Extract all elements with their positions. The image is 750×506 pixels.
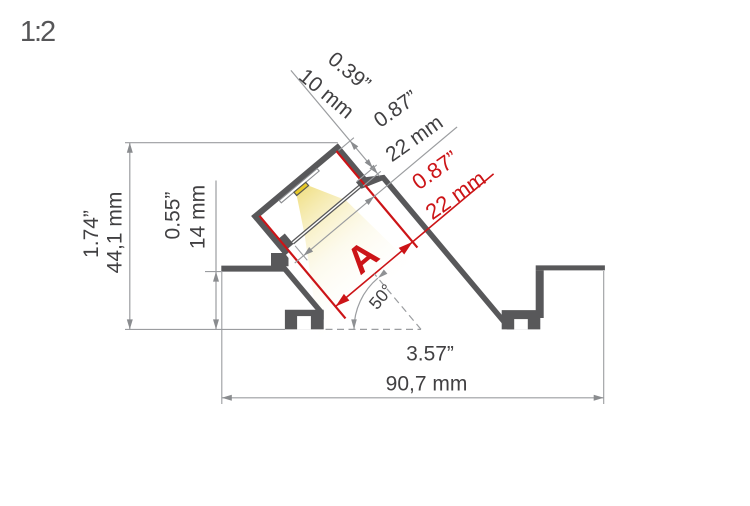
svg-text:1.74”: 1.74” [80,210,103,258]
svg-text:0.55”: 0.55” [162,192,185,240]
svg-text:14 mm: 14 mm [187,185,210,249]
svg-text:3.57”: 3.57” [406,343,454,366]
svg-text:90,7 mm: 90,7 mm [386,373,468,396]
svg-text:1:2: 1:2 [20,16,55,48]
svg-text:44,1 mm: 44,1 mm [104,192,127,274]
